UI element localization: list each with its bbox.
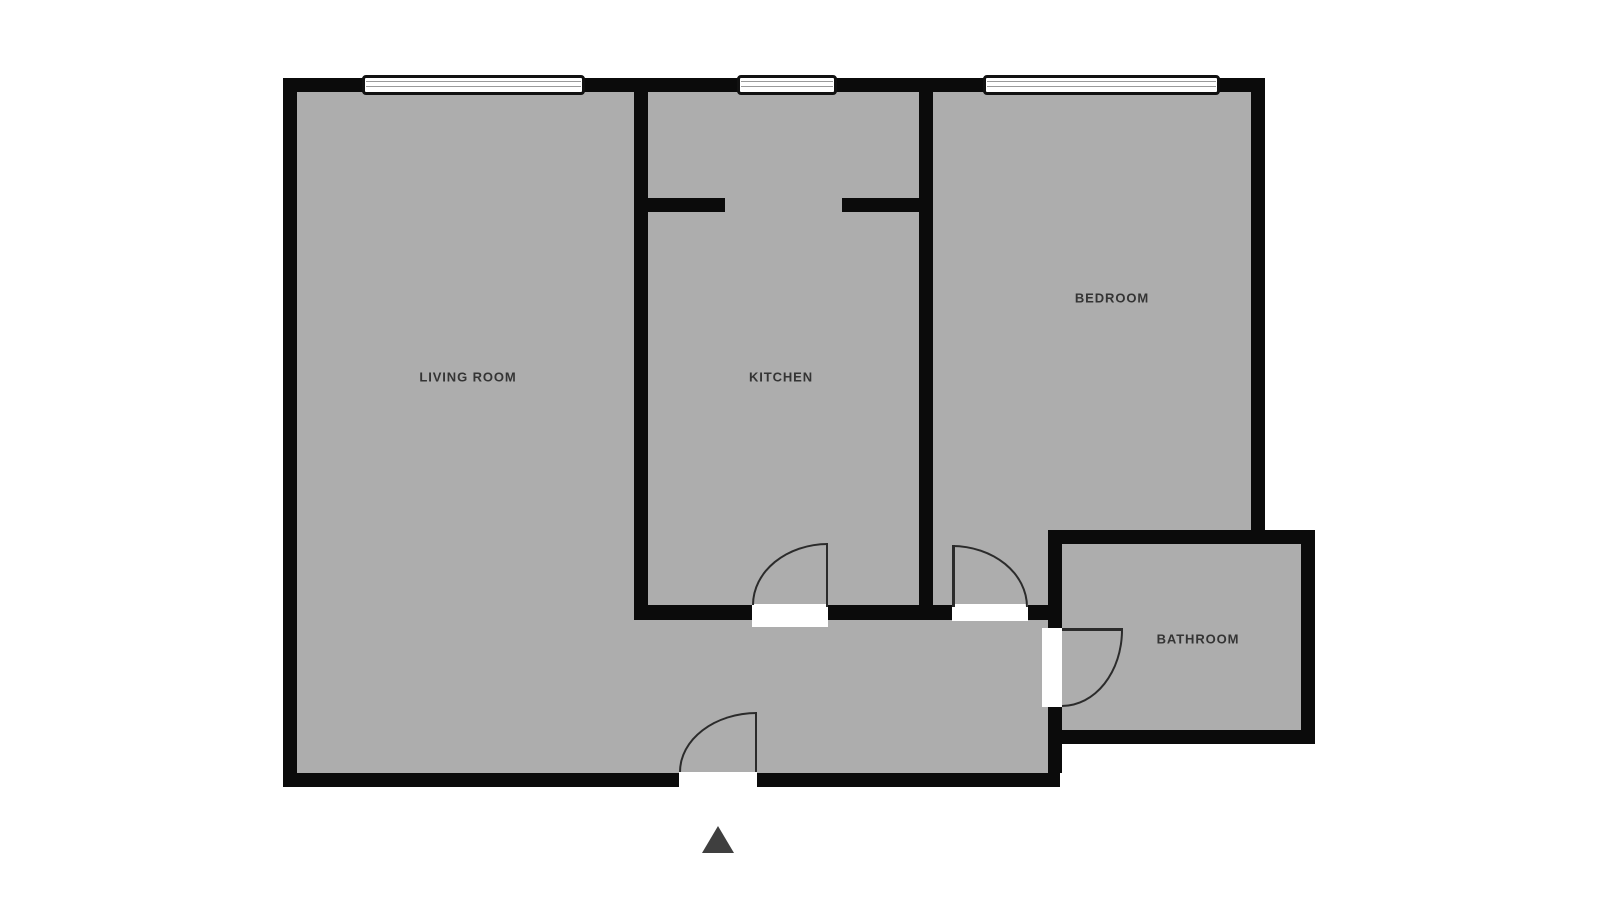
- wall-kitchen-stub-right: [842, 198, 919, 212]
- wall-bathroom-right: [1301, 530, 1315, 744]
- wall-bottom: [283, 773, 1060, 787]
- wall-bedroom-right: [1251, 78, 1265, 544]
- wall-left: [283, 78, 297, 787]
- bathroom-door-leaf: [1062, 628, 1123, 631]
- living-room-label: LIVING ROOM: [419, 370, 516, 385]
- entrance-triangle-icon: [702, 826, 734, 853]
- bathroom-label: BATHROOM: [1157, 632, 1240, 647]
- wall-kitchen-bedroom: [919, 92, 933, 620]
- entrance-door-opening: [679, 772, 757, 788]
- window-pane-line: [741, 81, 833, 82]
- kitchen-window-icon: [737, 75, 837, 95]
- wall-living-kitchen: [634, 92, 648, 620]
- entrance-door-leaf: [755, 712, 758, 772]
- wall-kitchen-stub-left: [648, 198, 725, 212]
- bedroom-window-icon: [983, 75, 1220, 95]
- wall-bathroom-bottom: [1048, 730, 1315, 744]
- window-pane-line: [366, 81, 581, 82]
- floor-plan-canvas: LIVING ROOM KITCHEN BEDROOM BATHROOM: [0, 0, 1600, 900]
- kitchen-door-opening: [752, 604, 828, 627]
- bathroom-door-opening: [1042, 628, 1062, 707]
- wall-bathroom-top: [1048, 530, 1315, 544]
- window-pane-line: [987, 86, 1216, 87]
- window-pane-line: [741, 86, 833, 87]
- kitchen-door-leaf: [826, 543, 829, 607]
- window-pane-line: [366, 86, 581, 87]
- bedroom-label: BEDROOM: [1075, 291, 1149, 306]
- kitchen-label: KITCHEN: [749, 370, 813, 385]
- living-room-window-icon: [362, 75, 585, 95]
- window-pane-line: [987, 81, 1216, 82]
- bedroom-door-leaf: [952, 545, 955, 607]
- floor-main-lower-hallway: [290, 530, 1055, 780]
- floor-main-upper: [290, 85, 1258, 530]
